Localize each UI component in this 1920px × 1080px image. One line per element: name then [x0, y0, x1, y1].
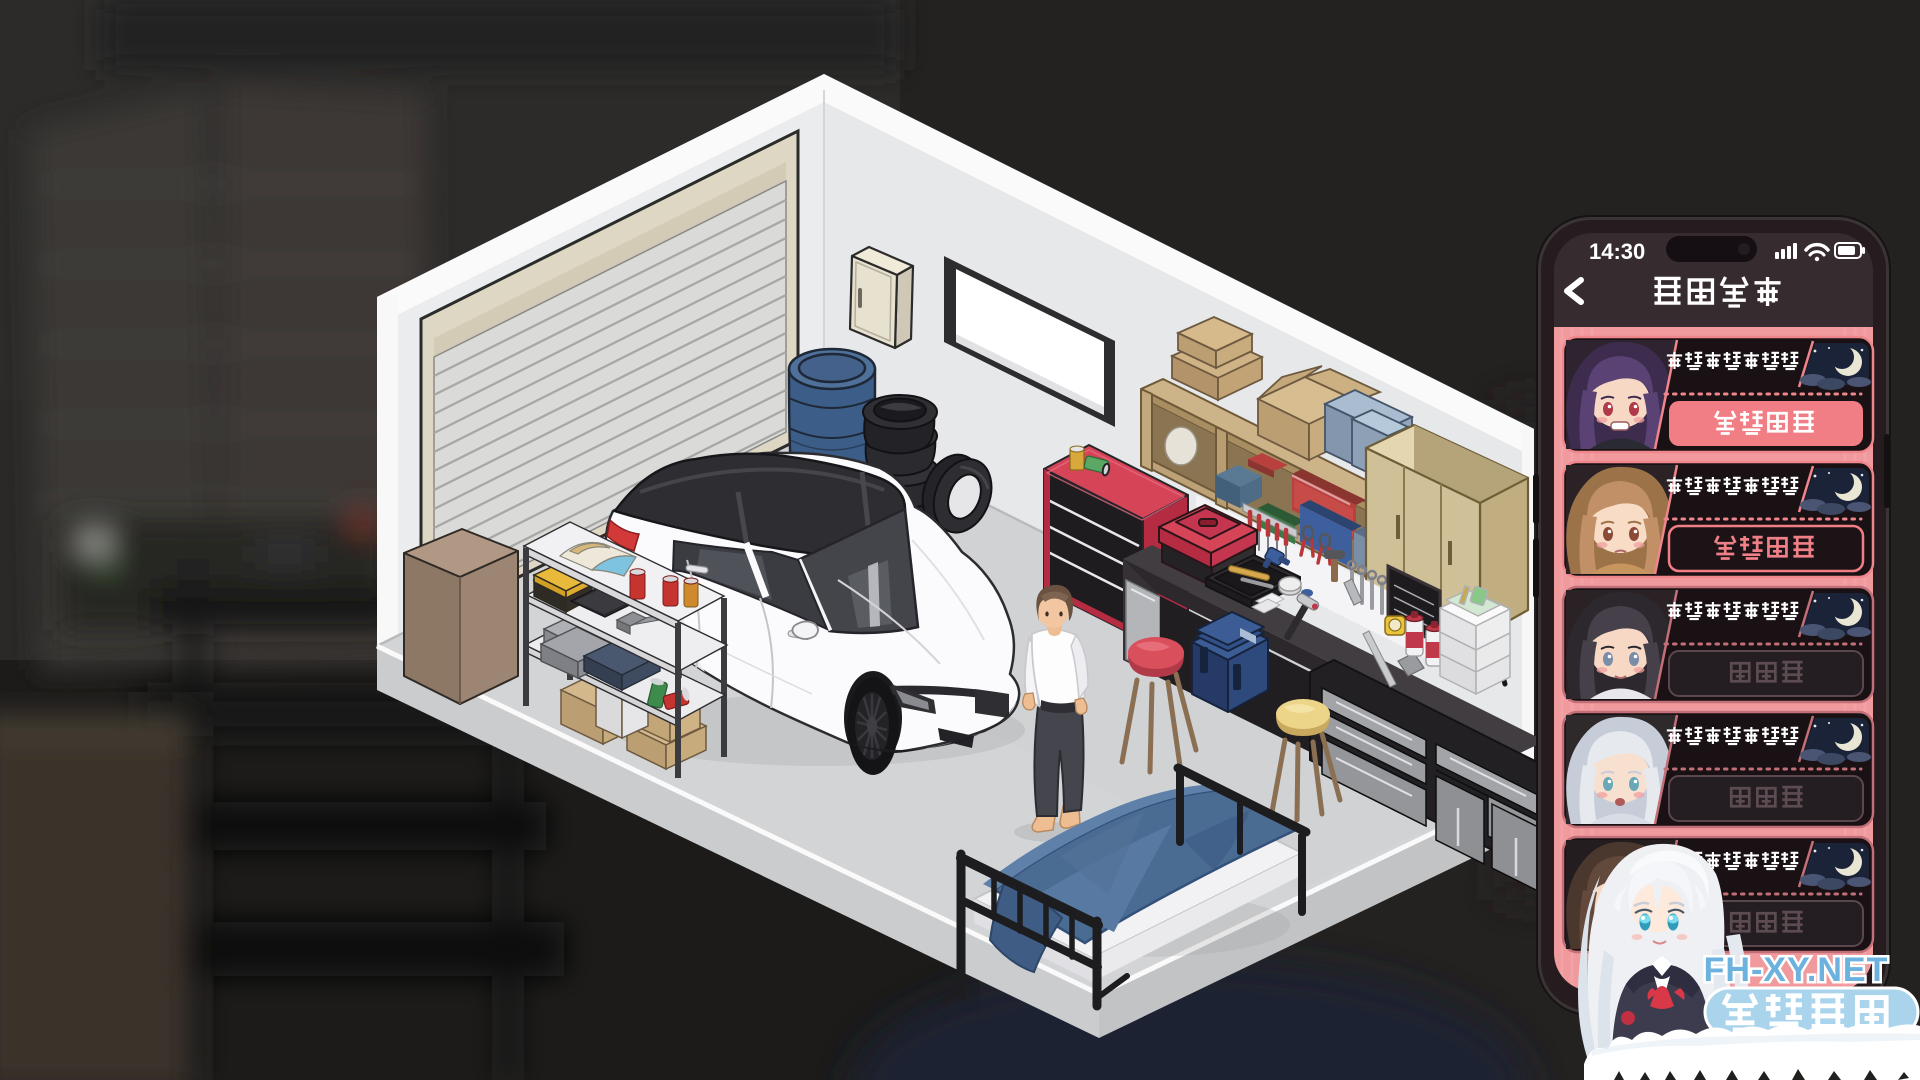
svg-text:FH-XY.NET: FH-XY.NET: [1704, 951, 1889, 989]
svg-text:14:30: 14:30: [1589, 239, 1645, 264]
